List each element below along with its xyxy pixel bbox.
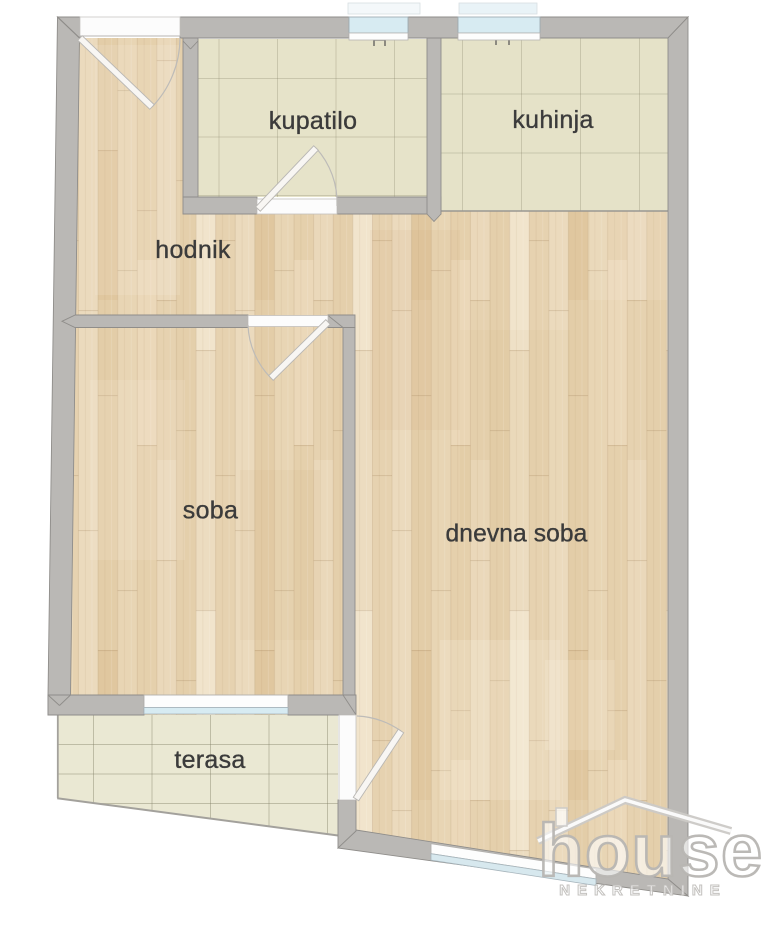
svg-text:kuhinja: kuhinja	[512, 106, 593, 134]
svg-text:house: house	[538, 809, 763, 892]
svg-text:NEKRETNINE: NEKRETNINE	[559, 882, 727, 899]
svg-text:terasa: terasa	[174, 746, 245, 774]
svg-text:soba: soba	[183, 497, 238, 525]
svg-text:hodnik: hodnik	[155, 236, 231, 264]
svg-text:kupatilo: kupatilo	[269, 107, 358, 135]
svg-text:dnevna soba: dnevna soba	[446, 521, 588, 548]
